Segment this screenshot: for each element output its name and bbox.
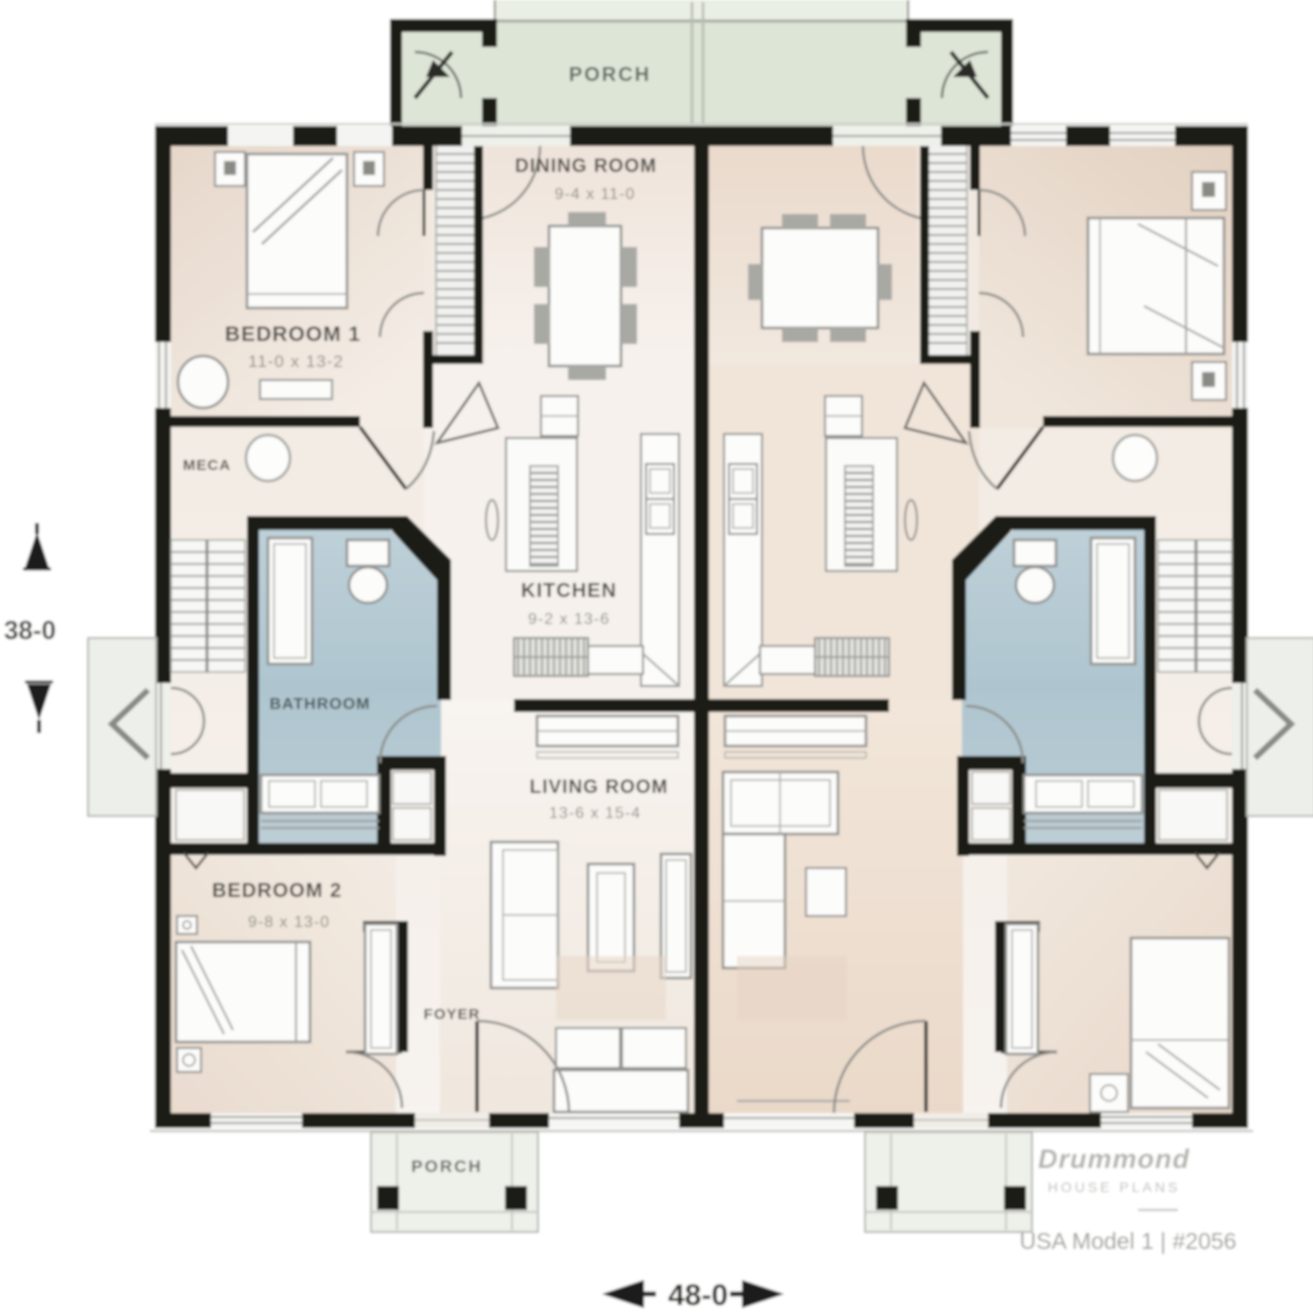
svg-text:KITCHEN: KITCHEN <box>521 580 617 602</box>
svg-text:9-2 x 13-6: 9-2 x 13-6 <box>528 611 610 628</box>
svg-text:MECA: MECA <box>183 457 231 474</box>
svg-text:USA Model 1 | #2056: USA Model 1 | #2056 <box>1020 1228 1237 1254</box>
svg-text:LIVING ROOM: LIVING ROOM <box>530 777 669 798</box>
svg-text:DINING ROOM: DINING ROOM <box>515 156 657 177</box>
svg-text:9-8 x 13-0: 9-8 x 13-0 <box>248 914 330 931</box>
svg-text:9-4 x 11-0: 9-4 x 11-0 <box>555 186 636 203</box>
svg-text:BATHROOM: BATHROOM <box>269 696 370 713</box>
svg-text:PORCH: PORCH <box>569 64 651 86</box>
svg-text:HOUSE PLANS: HOUSE PLANS <box>1048 1179 1181 1195</box>
svg-text:FOYER: FOYER <box>424 1006 481 1023</box>
svg-text:11-0 x 13-2: 11-0 x 13-2 <box>248 352 344 371</box>
svg-text:13-6 x 15-4: 13-6 x 15-4 <box>549 805 641 822</box>
svg-text:38-0: 38-0 <box>4 615 56 645</box>
svg-text:48-0: 48-0 <box>668 1279 728 1312</box>
svg-text:Drummond: Drummond <box>1038 1144 1190 1174</box>
svg-text:BEDROOM 1: BEDROOM 1 <box>225 323 361 346</box>
svg-text:PORCH: PORCH <box>411 1157 482 1176</box>
svg-text:BEDROOM 2: BEDROOM 2 <box>212 880 342 902</box>
